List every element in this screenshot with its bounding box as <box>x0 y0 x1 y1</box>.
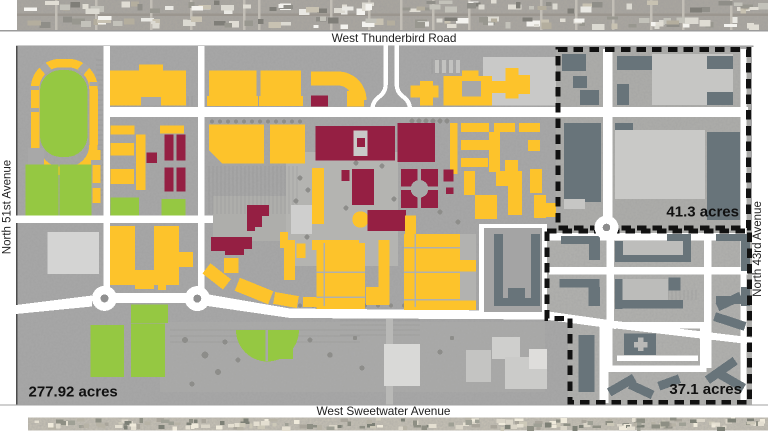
svg-text:West Sweetwater Avenue: West Sweetwater Avenue <box>317 404 451 418</box>
svg-text:North 43rd Avenue: North 43rd Avenue <box>752 201 764 297</box>
svg-text:North 51st Avenue: North 51st Avenue <box>2 160 14 254</box>
svg-text:41.3 acres: 41.3 acres <box>666 204 739 221</box>
svg-text:37.1 acres: 37.1 acres <box>669 381 742 398</box>
svg-text:West Thunderbird Road: West Thunderbird Road <box>332 31 457 45</box>
svg-text:277.92 acres: 277.92 acres <box>29 384 118 401</box>
